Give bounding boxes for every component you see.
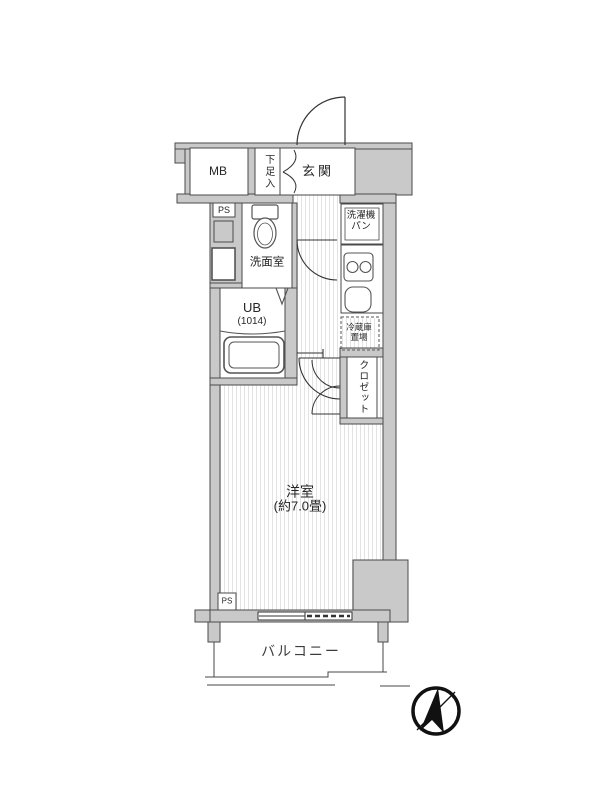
toilet-icon — [252, 205, 278, 248]
pipe-space-upper-label: PS — [218, 205, 230, 215]
unit-bath-size: (1014) — [238, 316, 267, 328]
pipe-space-lower-label: PS — [222, 596, 233, 605]
shoe-storage-label: 下足入 — [262, 154, 274, 190]
room-door-swing — [297, 349, 340, 399]
entrance-label: 玄関 — [302, 165, 334, 180]
washroom-label: 洗面室 — [250, 256, 285, 269]
closet-doors-swing — [312, 360, 340, 414]
washing-machine-pan-label: 洗濯機 パン — [347, 211, 376, 233]
hall-door-swing — [297, 240, 337, 280]
western-room-label: 洋室 (約7.0畳) — [274, 483, 327, 514]
compass-north-icon — [413, 688, 459, 734]
sliding-window — [258, 612, 352, 620]
entrance-door-swing — [297, 97, 345, 145]
western-room-size: (約7.0畳) — [274, 500, 327, 515]
plan-linework — [0, 0, 600, 800]
refrigerator-space-label: 冷蔵庫 置場 — [346, 323, 372, 343]
floor-plan: MB 下足入 玄関 PS 洗面室 洗濯機 パン UB (1014) 冷蔵庫 置場… — [0, 0, 600, 800]
meter-box-label: MB — [209, 165, 227, 179]
bathtub-icon — [220, 331, 285, 373]
closet-label: クロゼット — [356, 360, 368, 415]
unit-bath-label: UB (1014) — [238, 301, 267, 327]
stove-icon — [344, 253, 373, 281]
sink-icon — [345, 287, 371, 312]
balcony-label: バルコニー — [261, 643, 341, 659]
